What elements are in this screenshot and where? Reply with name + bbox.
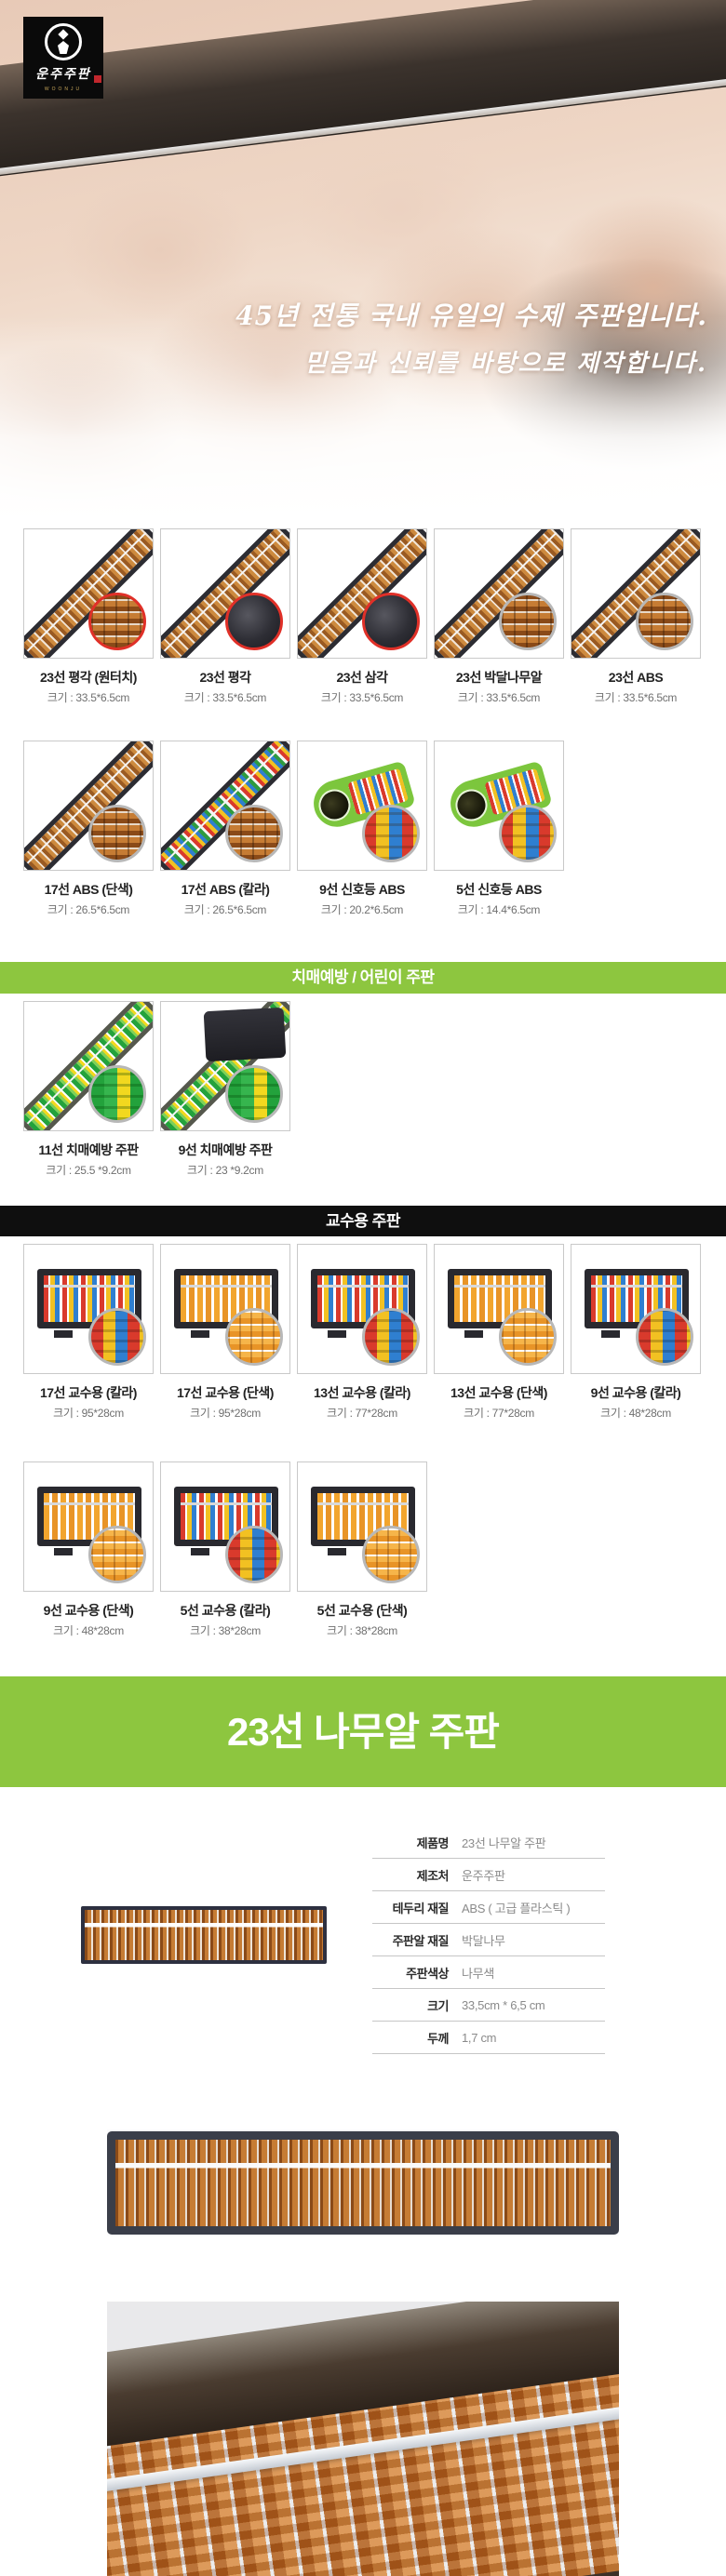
product-card: 23선 평각 (원터치)크기 : 33.5*6.5cm [23,528,154,705]
product-size: 크기 : 38*28cm [160,1622,290,1638]
abacus-graphic-feet [191,1548,209,1555]
abacus-graphic-feet [328,1548,346,1555]
brand-name: 운주주판 [35,64,91,83]
product-name: 13선 교수용 (칼라) [297,1383,427,1402]
abacus-graphic-feet [601,1330,620,1338]
product-name: 17선 ABS (칼라) [160,880,290,899]
product-card: 9선 교수용 (단색)크기 : 48*28cm [23,1462,154,1638]
spec-row: 제조처운주주판 [372,1859,605,1891]
abacus-graphic-circ [499,805,557,862]
product-name: 9선 신호등 ABS [297,880,427,899]
abacus-graphic-pouch [204,1008,287,1061]
spec-label: 두께 [372,2029,449,2047]
product-size: 크기 : 95*28cm [23,1405,154,1421]
product-image [434,741,564,871]
product-card: 23선 삼각크기 : 33.5*6.5cm [297,528,427,705]
spec-label: 테두리 재질 [372,1899,449,1916]
banner-teaching: 교수용 주판 [0,1206,726,1236]
product-card: 17선 ABS (칼라)크기 : 26.5*6.5cm [160,741,290,917]
product-card: 9선 치매예방 주판크기 : 23 *9.2cm [160,1001,290,1178]
spec-label: 주판색상 [372,1964,449,1982]
product-image [23,741,154,871]
product-name: 17선 교수용 (칼라) [23,1383,154,1402]
spec-row: 테두리 재질ABS ( 고급 플라스틱 ) [372,1891,605,1924]
product-size: 크기 : 77*28cm [297,1405,427,1421]
spec-section: 제품명23선 나무알 주판제조처운주주판테두리 재질ABS ( 고급 플라스틱 … [0,1787,726,2129]
abacus-front-view [107,2131,619,2235]
abacus-graphic-circ [88,1308,146,1366]
banner-product-title: 23선 나무알 주판 [0,1676,726,1787]
product-card: 13선 교수용 (칼라)크기 : 77*28cm [297,1244,427,1421]
abacus-graphic-circ [225,1526,283,1583]
product-card: 13선 교수용 (단색)크기 : 77*28cm [434,1244,564,1421]
product-size: 크기 : 26.5*6.5cm [160,901,290,917]
product-size: 크기 : 48*28cm [23,1622,154,1638]
product-size: 크기 : 33.5*6.5cm [23,689,154,705]
product-name: 23선 평각 [160,668,290,687]
spec-value: 운주주판 [462,1866,505,1884]
abacus-graphic-circ [88,593,146,650]
product-detail-page: 운주주판 WOONJU 45년 전통 국내 유일의 수제 주판입니다. 믿음과 … [0,0,726,2576]
banner-dementia-kids: 치매예방 / 어린이 주판 [0,962,726,994]
spec-row: 주판색상나무색 [372,1956,605,1989]
product-image [434,528,564,659]
product-name: 9선 교수용 (단색) [23,1601,154,1620]
product-name: 9선 치매예방 주판 [160,1141,290,1159]
product-size: 크기 : 38*28cm [297,1622,427,1638]
hero-tagline-line1: 45년 전통 국내 유일의 수제 주판입니다. [235,296,707,333]
product-name: 5선 교수용 (단색) [297,1601,427,1620]
product-image [434,1244,564,1374]
product-card: 9선 신호등 ABS크기 : 20.2*6.5cm [297,741,427,917]
product-name: 23선 삼각 [297,668,427,687]
product-card: 5선 교수용 (칼라)크기 : 38*28cm [160,1462,290,1638]
product-row-4: 17선 교수용 (칼라)크기 : 95*28cm17선 교수용 (단색)크기 :… [0,1244,726,1421]
product-row-2: 17선 ABS (단색)크기 : 26.5*6.5cm17선 ABS (칼라)크… [0,741,726,917]
abacus-bead-icon [45,23,82,60]
spec-row: 두께1,7 cm [372,2022,605,2054]
product-row-1: 23선 평각 (원터치)크기 : 33.5*6.5cm23선 평각크기 : 33… [0,528,726,705]
abacus-graphic-circ [362,593,420,650]
product-card: 5선 신호등 ABS크기 : 14.4*6.5cm [434,741,564,917]
product-card: 17선 교수용 (칼라)크기 : 95*28cm [23,1244,154,1421]
product-image [23,1244,154,1374]
product-image [571,1244,701,1374]
spec-value: 박달나무 [462,1931,505,1949]
product-name: 9선 교수용 (칼라) [571,1383,701,1402]
product-image [297,741,427,871]
product-name: 23선 ABS [571,668,701,687]
product-name: 5선 교수용 (칼라) [160,1601,290,1620]
product-name: 23선 평각 (원터치) [23,668,154,687]
spec-row: 제품명23선 나무알 주판 [372,1826,605,1859]
product-size: 크기 : 33.5*6.5cm [434,689,564,705]
product-image [297,1244,427,1374]
spec-value: 33,5cm * 6,5 cm [462,1998,544,2012]
spec-value: 나무색 [462,1964,494,1982]
product-card: 23선 평각크기 : 33.5*6.5cm [160,528,290,705]
brand-name-en: WOONJU [45,87,82,92]
product-image [23,1462,154,1592]
spec-label: 크기 [372,1996,449,2014]
product-card: 23선 ABS크기 : 33.5*6.5cm [571,528,701,705]
product-name: 17선 ABS (단색) [23,880,154,899]
abacus-graphic-circ [88,1526,146,1583]
product-thumbnail-photo [81,1906,327,1964]
product-image [23,1001,154,1131]
abacus-graphic-feet [54,1330,73,1338]
abacus-graphic-circ [225,1065,283,1123]
spec-row: 주판알 재질박달나무 [372,1924,605,1956]
spec-label: 주판알 재질 [372,1931,449,1949]
spec-label: 제품명 [372,1834,449,1851]
product-card: 23선 박달나무알크기 : 33.5*6.5cm [434,528,564,705]
product-card: 9선 교수용 (칼라)크기 : 48*28cm [571,1244,701,1421]
product-row-3: 11선 치매예방 주판크기 : 25.5 *9.2cm9선 치매예방 주판크기 … [0,1001,726,1178]
product-name: 23선 박달나무알 [434,668,564,687]
abacus-graphic-circ [225,805,283,862]
brand-logo: 운주주판 WOONJU [23,17,103,99]
product-card: 17선 ABS (단색)크기 : 26.5*6.5cm [23,741,154,917]
product-size: 크기 : 20.2*6.5cm [297,901,427,917]
product-card: 11선 치매예방 주판크기 : 25.5 *9.2cm [23,1001,154,1178]
product-size: 크기 : 95*28cm [160,1405,290,1421]
abacus-graphic-circ [499,1308,557,1366]
hero-tagline-line2: 믿음과 신뢰를 바탕으로 제작합니다. [235,344,707,379]
product-image [23,528,154,659]
product-image [297,528,427,659]
product-size: 크기 : 33.5*6.5cm [160,689,290,705]
spec-value: 23선 나무알 주판 [462,1834,545,1851]
product-card: 5선 교수용 (단색)크기 : 38*28cm [297,1462,427,1638]
abacus-graphic-feet [191,1330,209,1338]
product-size: 크기 : 26.5*6.5cm [23,901,154,917]
product-photo-front [107,2129,619,2236]
abacus-graphic-circ [88,805,146,862]
spec-value: 1,7 cm [462,2031,496,2045]
abacus-graphic-feet [328,1330,346,1338]
product-photo-closeup [107,2302,619,2576]
abacus-graphic-circ [362,1308,420,1366]
abacus-graphic-feet [464,1330,483,1338]
abacus-graphic-circ [362,805,420,862]
product-size: 크기 : 77*28cm [434,1405,564,1421]
product-image [571,528,701,659]
abacus-graphic-feet [54,1548,73,1555]
spec-value: ABS ( 고급 플라스틱 ) [462,1899,570,1916]
product-image [297,1462,427,1592]
product-name: 17선 교수용 (단색) [160,1383,290,1402]
product-row-5: 9선 교수용 (단색)크기 : 48*28cm5선 교수용 (칼라)크기 : 3… [0,1462,726,1638]
spec-photo-wrap [0,1787,372,2129]
spec-row: 크기33,5cm * 6,5 cm [372,1989,605,2022]
abacus-graphic-circ [499,593,557,650]
product-name: 5선 신호등 ABS [434,880,564,899]
product-size: 크기 : 48*28cm [571,1405,701,1421]
hero-photo: 운주주판 WOONJU 45년 전통 국내 유일의 수제 주판입니다. 믿음과 … [0,0,726,521]
abacus-graphic-circ [88,1065,146,1123]
spec-label: 제조처 [372,1866,449,1884]
abacus-graphic-circ [362,1526,420,1583]
product-size: 크기 : 14.4*6.5cm [434,901,564,917]
abacus-graphic-circ [225,1308,283,1366]
product-image [160,1462,290,1592]
product-card: 17선 교수용 (단색)크기 : 95*28cm [160,1244,290,1421]
abacus-graphic-circ [636,1308,693,1366]
product-size: 크기 : 33.5*6.5cm [571,689,701,705]
product-image [160,1244,290,1374]
abacus-graphic-circ [225,593,283,650]
product-size: 크기 : 25.5 *9.2cm [23,1162,154,1178]
abacus-graphic-circ [636,593,693,650]
hero-tagline: 45년 전통 국내 유일의 수제 주판입니다. 믿음과 신뢰를 바탕으로 제작합… [235,296,707,379]
spec-table: 제품명23선 나무알 주판제조처운주주판테두리 재질ABS ( 고급 플라스틱 … [372,1826,605,2129]
product-name: 13선 교수용 (단색) [434,1383,564,1402]
product-name: 11선 치매예방 주판 [23,1141,154,1159]
product-image [160,741,290,871]
product-image [160,1001,290,1131]
product-size: 크기 : 23 *9.2cm [160,1162,290,1178]
product-size: 크기 : 33.5*6.5cm [297,689,427,705]
product-image [160,528,290,659]
